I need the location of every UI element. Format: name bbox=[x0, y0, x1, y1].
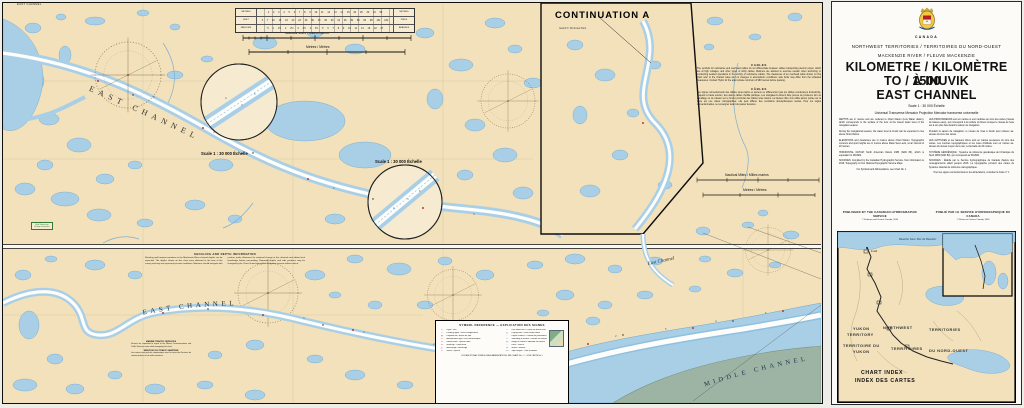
symbol-legend: SYMBOL REFERENCE — EXPLICATION DES SIGNE… bbox=[435, 320, 569, 404]
magnifier-inset-2 bbox=[368, 165, 442, 239]
note-elevations-fr: LES ALTITUDES et les hauteurs libres son… bbox=[929, 140, 1014, 149]
legend-row-label: Wreck / Épave bbox=[447, 350, 460, 353]
conversion-row-cells: 1 2 3 4 5 6 7 8 9 10 11 12 13 14 15 20 2… bbox=[257, 9, 393, 16]
title-panel: CANADA NORTHWEST TERRITORIES / TERRITOIR… bbox=[831, 1, 1022, 405]
cables-title-fr: CÂBLES bbox=[697, 87, 821, 91]
cables-title-en: CABLES bbox=[697, 63, 821, 67]
cables-body-fr: Les signes conventionnels des câbles sou… bbox=[697, 92, 821, 107]
legend-title: SYMBOL REFERENCE — EXPLICATION DES SIGNE… bbox=[439, 323, 565, 327]
note-depths-fr: LES PROFONDEURS sont en mètres et sont r… bbox=[929, 119, 1014, 128]
panel-divider bbox=[3, 245, 821, 249]
continuation-a-label: CONTINUATION A bbox=[555, 10, 650, 21]
territory-line: NORTHWEST TERRITORIES / TERRITOIRES DU N… bbox=[832, 44, 1021, 49]
conversion-row-cells: 3 7 10 13 16 20 23 26 30 33 36 39 43 46 … bbox=[257, 17, 393, 24]
index-nwt-label-3: TERRITOIRES bbox=[891, 346, 923, 351]
projection-statement: Universal Transverse Mercator Projection… bbox=[832, 111, 1021, 115]
traffic-body-fr: Les navires sont priés de communiquer av… bbox=[131, 352, 191, 357]
index-nwt-label-1: NORTHWEST bbox=[883, 325, 913, 330]
legend-column-left: ✶ Light / Feu ⌖ Leading lights / Feux d'… bbox=[439, 329, 500, 354]
conversion-row-label-left: FATHOMS bbox=[236, 25, 257, 32]
index-yukon-label-4: YUKON bbox=[853, 349, 870, 354]
note-depths-en: DEPTHS are in metres and are reduced to … bbox=[839, 119, 924, 128]
publisher-row: PUBLISHED BY THE CANADIAN HYDROGRAPHIC S… bbox=[837, 210, 1016, 221]
note-datum-en: HORIZONTAL DATUM: North American Datum 1… bbox=[839, 152, 924, 158]
conversion-row: METRES 1 2 3 4 5 6 7 8 9 10 11 12 13 14 … bbox=[236, 9, 414, 17]
note-levels-en: During the navigational season, the wate… bbox=[839, 131, 924, 137]
note-symbols-fr: Pour les signes conventionnels et les ab… bbox=[929, 172, 1014, 175]
index-yukon-label-1: YUKON bbox=[853, 326, 870, 331]
edge-note: EAST CHANNEL bbox=[17, 3, 42, 6]
conversion-row-label-right: METRES bbox=[393, 9, 414, 16]
index-yukon-label-3: TERRITOIRE DU bbox=[843, 343, 880, 348]
index-nwt-label-2: TERRITORIES bbox=[929, 327, 961, 332]
chart-title-line-3: EAST CHANNEL bbox=[832, 88, 1021, 102]
chart-index-map: Beaufort Sea / Mer de Beaufort Inuvik bbox=[837, 231, 1016, 408]
sanctuary-note-box: Bird Sanctuary Refuge d'oiseaux bbox=[31, 222, 53, 230]
svg-text:Metres / Mètres: Metres / Mètres bbox=[743, 188, 767, 192]
published-by-en: PUBLISHED BY THE CANADIAN HYDROGRAPHIC S… bbox=[837, 210, 923, 218]
scale-statement: Scale 1 : 30 000 Échelle bbox=[832, 104, 1021, 108]
canada-crest-icon bbox=[832, 7, 1021, 36]
legend-row-label: Spot height / Cote d'altitude bbox=[512, 350, 537, 353]
published-by-fr: PUBLIÉ PAR LE SERVICE HYDROGRAPHIQUE DU … bbox=[930, 210, 1016, 218]
index-yukon-label-2: TERRITORY bbox=[847, 332, 874, 337]
copyright-en: © Fisheries and Oceans Canada, 2016 bbox=[837, 219, 923, 221]
chart-title-line-2: TO / À INUVIK bbox=[832, 74, 1021, 88]
note-symbols-en: For Symbols and Abbreviations, see Chart… bbox=[839, 169, 924, 172]
cables-notes: CABLES The symbols for submarine and ove… bbox=[697, 63, 821, 111]
conversion-row-cells: ½ 1 1½ 2 2½ 3 3½ 4 4½ 5 6 7 8 9 10 11 14… bbox=[257, 25, 393, 32]
sanctuary-line-2: Refuge d'oiseaux bbox=[33, 226, 52, 229]
legend-symbol-icon: ·127 bbox=[504, 350, 510, 353]
index-title-line-1: CHART INDEX bbox=[861, 370, 903, 376]
copyright-fr: © Pêches et Océans Canada, 2016 bbox=[930, 219, 1016, 221]
chart-sheet: EAST CHANNEL Scale 1 : 30 000 Échelle bbox=[0, 0, 1024, 406]
index-inset-box bbox=[943, 234, 1012, 296]
index-town-label: Inuvik bbox=[871, 250, 878, 253]
conversion-row: FATHOMS ½ 1 1½ 2 2½ 3 3½ 4 4½ 5 6 7 8 9 … bbox=[236, 25, 414, 32]
index-sea-label: Beaufort Sea / Mer de Beaufort bbox=[899, 237, 936, 241]
note-sources-fr: SOURCES : Établie par le Service hydrogr… bbox=[929, 160, 1014, 169]
magnifier-inset-1 bbox=[201, 64, 277, 140]
notes-column-fr: LES PROFONDEURS sont en mètres et sont r… bbox=[929, 119, 1014, 178]
conversion-table: METRES 1 2 3 4 5 6 7 8 9 10 11 12 13 14 … bbox=[235, 8, 415, 33]
park-label: Gwich'in Territorial Park bbox=[559, 27, 586, 30]
svg-text:Nautical Miles / Milles marins: Nautical Miles / Milles marins bbox=[725, 173, 769, 177]
publisher-en: PUBLISHED BY THE CANADIAN HYDROGRAPHIC S… bbox=[837, 210, 923, 221]
shoaling-note-title: SHOALING AND DEPTH INFORMATION bbox=[145, 253, 305, 256]
legend-footer: FOR ADDITIONAL SYMBOLS AND ABBREVIATIONS… bbox=[439, 355, 565, 357]
legend-terrain-sample bbox=[549, 330, 564, 347]
note-elevations-en: ELEVATIONS and clearances are in metres … bbox=[839, 140, 924, 149]
shoaling-note: SHOALING AND DEPTH INFORMATION Shoaling … bbox=[145, 253, 305, 266]
traffic-note: MARINE TRAFFIC SERVICES Vessels are requ… bbox=[131, 341, 191, 359]
river-line: MACKENZIE RIVER / FLEUVE MACKENZIE bbox=[832, 53, 1021, 58]
note-sources-en: SOURCES: Compiled by the Canadian Hydrog… bbox=[839, 160, 924, 166]
shoaling-note-body: Shoaling and frequent variations in the … bbox=[145, 257, 305, 266]
conversion-row-label-right: BRASSES bbox=[393, 25, 414, 32]
legend-symbol-icon: ✕ bbox=[439, 350, 445, 353]
index-town-dot bbox=[866, 247, 868, 249]
conversion-row: FEET 3 7 10 13 16 20 23 26 30 33 36 39 4… bbox=[236, 17, 414, 25]
legend-row: ·127 Spot height / Cote d'altitude bbox=[504, 350, 565, 353]
notes-column-en: DEPTHS are in metres and are reduced to … bbox=[839, 119, 924, 178]
magnifier-2-label: Scale 1 : 30 000 Échelle bbox=[375, 159, 422, 164]
note-levels-fr: Pendant la saison de navigation, le nive… bbox=[929, 131, 1014, 137]
traffic-body-en: Vessels are requested to report to the M… bbox=[131, 343, 191, 348]
magnifier-1-label: Scale 1 : 30 000 Échelle bbox=[201, 151, 248, 156]
country-label: CANADA bbox=[832, 35, 1021, 39]
index-nwt-label-4: DU NORD-OUEST bbox=[929, 348, 968, 353]
conversion-row-label-left: METRES bbox=[236, 9, 257, 16]
svg-text:Metres / Mètres: Metres / Mètres bbox=[306, 45, 330, 49]
main-chart: EAST CHANNEL Scale 1 : 30 000 Échelle bbox=[2, 2, 823, 404]
cables-body-en: The symbols for submarine and overhead c… bbox=[697, 68, 821, 83]
publisher-fr: PUBLIÉ PAR LE SERVICE HYDROGRAPHIQUE DU … bbox=[930, 210, 1016, 221]
index-title-line-2: INDEX DES CARTES bbox=[855, 378, 915, 384]
note-datum-fr: SYSTÈME GÉODÉSIQUE : Système de référenc… bbox=[929, 152, 1014, 158]
conversion-row-label-left: FEET bbox=[236, 17, 257, 24]
conversion-row-label-right: PIEDS bbox=[393, 17, 414, 24]
legend-row: ✕ Wreck / Épave bbox=[439, 350, 500, 353]
